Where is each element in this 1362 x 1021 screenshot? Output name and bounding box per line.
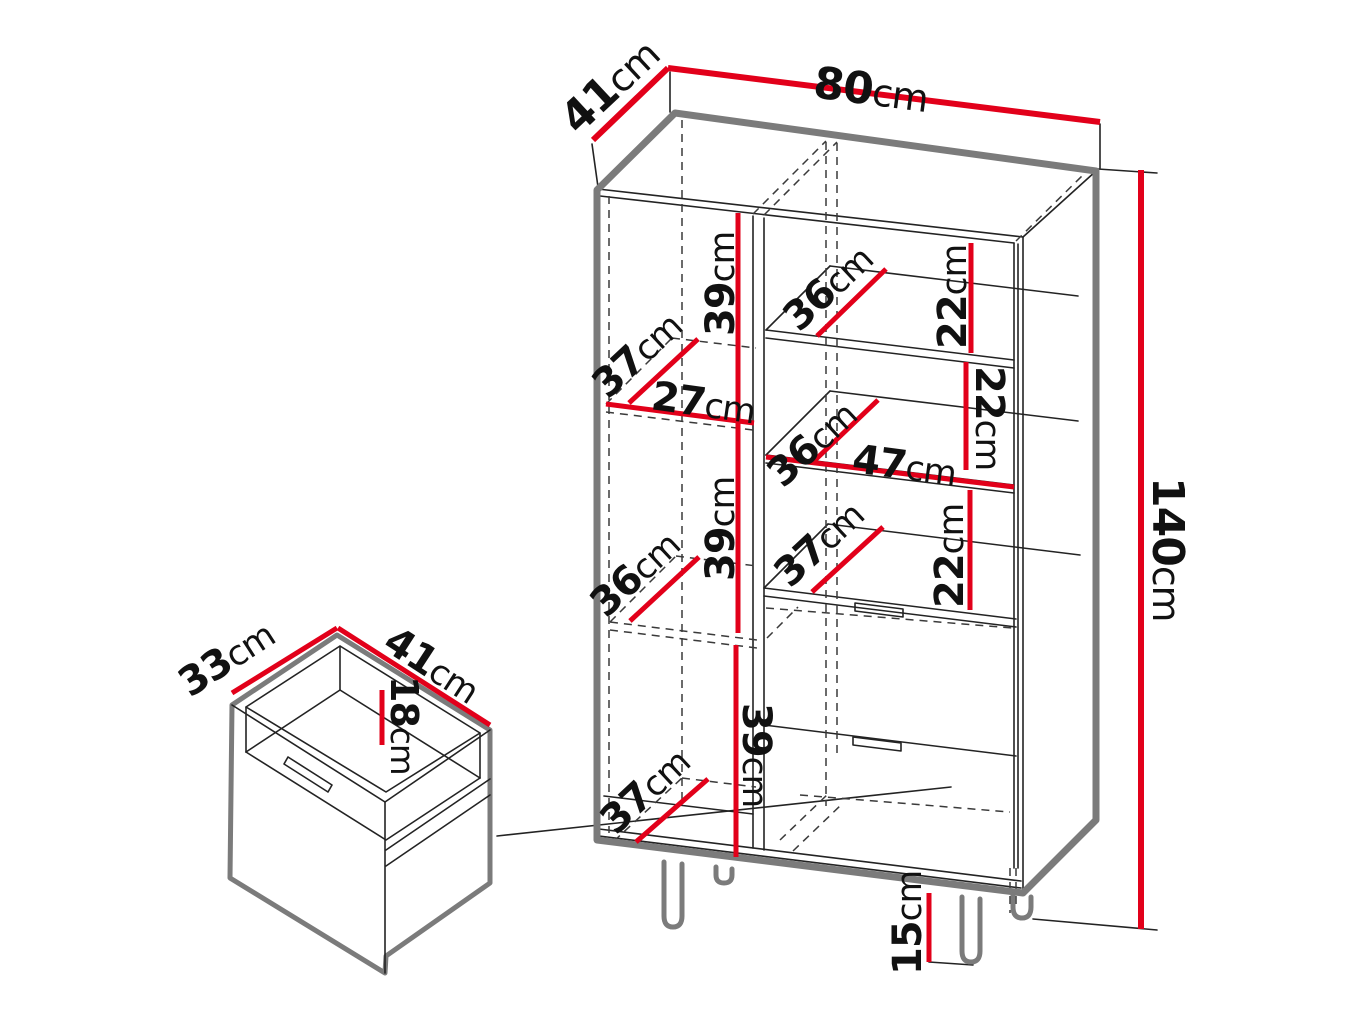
- top-right-edge: [1023, 171, 1096, 237]
- detail-leader-line: [497, 787, 951, 836]
- top-front-edge: [598, 189, 1023, 237]
- ext-140-top: [1098, 169, 1157, 173]
- ext-41: [592, 144, 598, 187]
- back-left-leg: [716, 867, 732, 883]
- interior-ceiling-edge: [600, 196, 1014, 243]
- dim-label-right-gap2-22: 22cm: [966, 366, 1012, 470]
- dim-label-width-80: 80cm: [811, 57, 932, 123]
- drawer2-box-hidden: [800, 795, 1010, 812]
- dim-label-right-gap3-22: 22cm: [927, 504, 973, 608]
- dim-label-drawer-depth-33: 33cm: [170, 611, 282, 706]
- drawer-rim-front-edges: [232, 705, 490, 802]
- drawer-inner-bottom-front: [246, 752, 480, 840]
- dim-label-leg-15: 15cm: [885, 871, 931, 975]
- front-left-leg: [664, 862, 682, 927]
- dim-label-left-top-39: 39cm: [698, 232, 744, 336]
- cabinet-technical-drawing: 41cm 80cm 140cm 39cm 37cm 27cm 36cm 39cm…: [0, 0, 1362, 1021]
- drawer-detail-handle: [284, 757, 332, 792]
- drawer1-corner-hidden: [767, 607, 798, 638]
- dim-label-right-shelf3-37: 37cm: [765, 492, 873, 597]
- dim-label-left-mid-39: 39cm: [698, 477, 744, 581]
- partition-top-hidden: [753, 141, 826, 214]
- bottom-depth-hidden2: [793, 805, 841, 851]
- dim-label-height-140: 140cm: [1142, 477, 1193, 622]
- dim-label-right-gap1-22: 22cm: [930, 245, 976, 349]
- dim-label-drawer-height-18: 18cm: [382, 676, 426, 775]
- furniture-dimension-diagram: 41cm 80cm 140cm 39cm 37cm 27cm 36cm 39cm…: [0, 0, 1362, 1021]
- dimension-lines: [232, 68, 1141, 962]
- shelf1-thickness: [766, 338, 1014, 368]
- front-right-leg: [962, 897, 980, 962]
- dim-label-left-bottom-37: 37cm: [591, 739, 699, 844]
- shelf2-back-edge: [830, 391, 1078, 421]
- drawer2-top-edge: [764, 725, 1016, 756]
- left-shelf2-front: [610, 622, 757, 640]
- dim-label-left-bottom-39: 39cm: [733, 703, 779, 807]
- dim-label-left-width-27: 27cm: [649, 373, 758, 433]
- dim-label-right-width-47: 47cm: [850, 436, 959, 495]
- shelf3-front-edge: [764, 588, 1016, 619]
- bottom-depth-hidden1: [780, 794, 828, 840]
- ceiling-right-hidden: [1016, 173, 1085, 241]
